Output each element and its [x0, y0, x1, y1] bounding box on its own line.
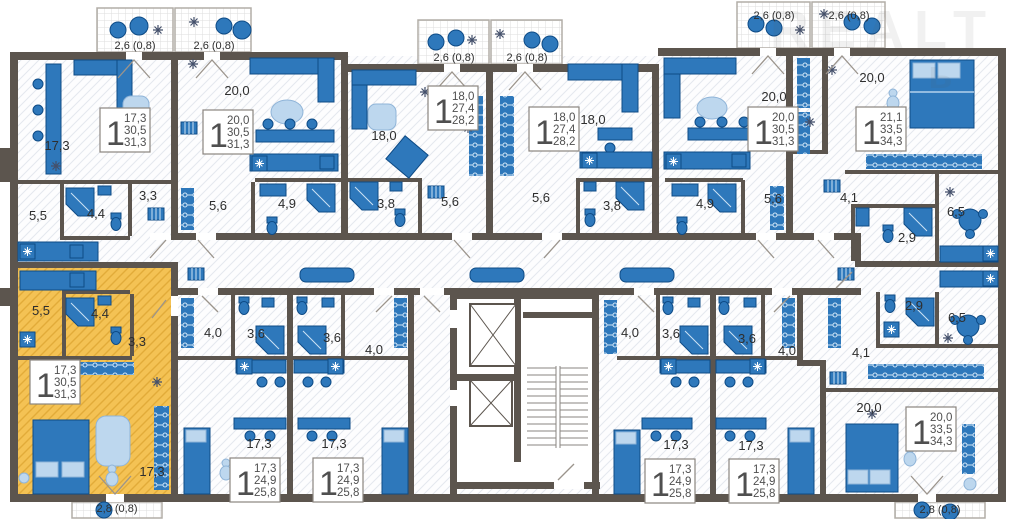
total-area: 34,3	[930, 436, 952, 448]
apartment-area: 24,9	[254, 475, 276, 487]
apartment-area: 30,5	[54, 377, 76, 389]
room-label: 5,6	[209, 198, 227, 213]
apartment-type: 1	[36, 367, 55, 405]
watermark-text: ь	[928, 53, 953, 97]
room-label: 17,3	[738, 438, 763, 453]
room-label: 18,0	[580, 112, 605, 127]
apartment-type: 1	[236, 465, 255, 503]
room-label: 17,3	[663, 437, 688, 452]
room-label: 4,4	[87, 206, 105, 221]
total-area: 28,2	[452, 115, 474, 127]
room-label: 3,8	[603, 198, 621, 213]
living-area: 18,0	[452, 91, 474, 103]
apartment-info-card-highlighted: 117,330,531,3	[30, 360, 80, 405]
room-label: 5,5	[32, 303, 50, 318]
apartment-area: 27,4	[553, 124, 576, 136]
apartment-info-card: 117,324,925,8	[729, 459, 779, 504]
room-label: 20,0	[856, 400, 881, 415]
apartment-type: 1	[651, 466, 670, 504]
room-label: 20,0	[859, 70, 884, 85]
total-area: 31,3	[772, 136, 794, 148]
apartment-type: 1	[912, 414, 931, 452]
room-label: 3,6	[323, 330, 341, 345]
total-area: 25,8	[337, 487, 359, 499]
room-label: 4,0	[204, 325, 222, 340]
room-label: 3,3	[128, 334, 146, 349]
living-area: 17,3	[337, 463, 359, 475]
apartment-info-card: 117,330,531,3	[100, 108, 150, 153]
apartment-info-card: 120,030,531,3	[203, 110, 253, 155]
room-label: 4,4	[91, 306, 109, 321]
room-label: 17,3	[246, 436, 271, 451]
apartment-type: 1	[535, 114, 554, 152]
apartment-type: 1	[862, 114, 881, 152]
room-label: 3,6	[247, 326, 265, 341]
living-area: 17,3	[124, 113, 146, 125]
total-area: 25,8	[753, 488, 775, 500]
room-label: 4,1	[852, 345, 870, 360]
apartment-area: 24,9	[669, 476, 691, 488]
apartment-area: 24,9	[753, 476, 775, 488]
total-area: 34,3	[880, 136, 902, 148]
apartment-info-card: 117,324,925,8	[313, 458, 363, 503]
apartment-info-card: 117,324,925,8	[645, 459, 695, 504]
room-label: 3,8	[377, 196, 395, 211]
room-label: 2,9	[905, 298, 923, 313]
room-label: 18,0	[371, 128, 396, 143]
apartment-type: 1	[209, 117, 228, 155]
total-area: 31,3	[227, 139, 249, 151]
apartment-area: 30,5	[124, 125, 146, 137]
room-label: 6,5	[947, 204, 965, 219]
living-area: 20,0	[930, 412, 952, 424]
apartment-area: 30,5	[772, 124, 794, 136]
balcony-label: 2,6 (0,8)	[507, 52, 548, 64]
room-label: 4,0	[365, 342, 383, 357]
living-area: 17,3	[254, 463, 276, 475]
room-label: 4,0	[778, 343, 796, 358]
balcony-label: 2,6 (0,8)	[194, 40, 235, 52]
living-area: 20,0	[772, 112, 794, 124]
room-label: 17,3	[139, 464, 164, 479]
living-area: 20,0	[227, 115, 249, 127]
room-label: 20,0	[761, 89, 786, 104]
balcony-label: 2,8 (0,8)	[97, 503, 138, 515]
apartment-type: 1	[735, 466, 754, 504]
room-label: 3,3	[139, 188, 157, 203]
room-label: 6,5	[948, 310, 966, 325]
total-area: 25,8	[254, 487, 276, 499]
apartment-info-card: 120,033,534,3	[906, 407, 956, 452]
room-label: 17,3	[321, 436, 346, 451]
room-label: 5,6	[441, 194, 459, 209]
apartment-info-card: 117,324,925,8	[230, 458, 280, 503]
apartment-info-card: 118,027,428,2	[428, 86, 478, 131]
living-area: 17,3	[669, 464, 691, 476]
apartment-area: 33,5	[930, 424, 952, 436]
apartment-area: 30,5	[227, 127, 249, 139]
room-label: 4,0	[621, 325, 639, 340]
apartment-area: 33,5	[880, 124, 902, 136]
room-label: 20,0	[224, 83, 249, 98]
living-area: 17,3	[54, 365, 76, 377]
floor-plan-svg: 2,6 (0,8) 2,6 (0,8) 2,6 (0,8) 2,6 (0,8) …	[0, 0, 1024, 519]
apartment-info-card: 120,030,531,3	[748, 107, 798, 152]
apartment-type: 1	[106, 115, 125, 153]
floor-plan-page: 2,6 (0,8) 2,6 (0,8) 2,6 (0,8) 2,6 (0,8) …	[0, 0, 1024, 519]
apartment-info-card: 118,027,428,2	[529, 107, 579, 152]
room-label: 17,3	[44, 138, 69, 153]
living-area: 21,1	[880, 112, 902, 124]
living-area: 18,0	[553, 112, 575, 124]
balcony-label: 2,6 (0,8)	[115, 40, 156, 52]
total-area: 31,3	[54, 389, 76, 401]
room-label: 4,9	[696, 196, 714, 211]
room-label: 4,1	[840, 190, 858, 205]
room-label: 5,5	[29, 208, 47, 223]
apartment-area: 24,9	[337, 475, 359, 487]
total-area: 28,2	[553, 136, 575, 148]
total-area: 25,8	[669, 488, 691, 500]
balcony-label: 2,6 (0,8)	[434, 52, 475, 64]
room-label: 5,6	[532, 190, 550, 205]
apartment-area: 27,4	[452, 103, 475, 115]
apartment-type: 1	[434, 93, 453, 131]
apartment-type: 1	[754, 114, 773, 152]
room-label: 5,6	[764, 191, 782, 206]
total-area: 31,3	[124, 137, 146, 149]
room-label: 3,6	[662, 326, 680, 341]
living-area: 17,3	[753, 464, 775, 476]
room-label: 2,9	[898, 230, 916, 245]
balcony-label: 2,8 (0,8)	[920, 504, 961, 516]
apartment-info-card: 121,133,534,3	[856, 107, 906, 152]
apartment-type: 1	[319, 465, 338, 503]
room-label: 4,9	[278, 196, 296, 211]
watermark-text: REALT	[770, 0, 996, 60]
room-label: 3,6	[738, 331, 756, 346]
